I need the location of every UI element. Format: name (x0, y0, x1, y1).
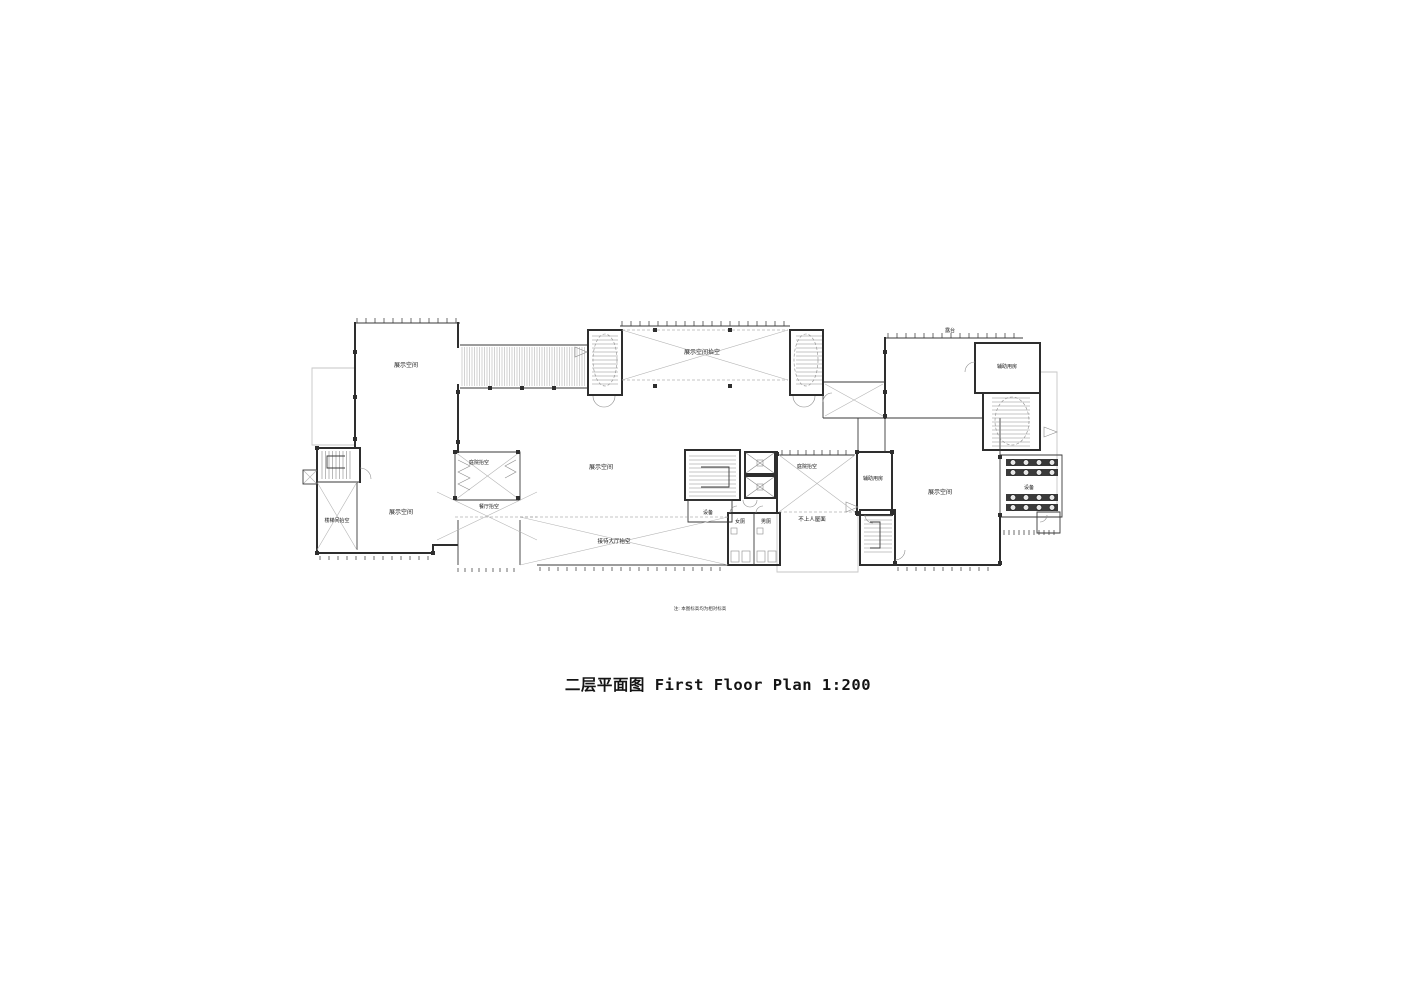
room-label-terrace: 露台 (945, 327, 955, 334)
room-label-stairwell-void: 楼梯间抬空 (324, 517, 349, 524)
room-label-aux-center: 辅助用房 (863, 475, 883, 482)
room-label-dining-void: 餐厅抬空 (479, 503, 499, 510)
room-label-exhibition-bottom-left: 展示空间 (389, 508, 413, 516)
room-label-inaccessible-roof: 不上人屋面 (798, 515, 826, 523)
walls (317, 323, 1062, 565)
drawing-sheet: 展示空间 展示空间抬空 露台 辅助用房 庭院抬空 展示空间 庭院抬空 辅助用房 … (0, 0, 1416, 1000)
floor-plan: 展示空间 展示空间抬空 露台 辅助用房 庭院抬空 展示空间 庭院抬空 辅助用房 … (0, 0, 1416, 1000)
room-label-exhibition-void-top: 展示空间抬空 (684, 348, 720, 356)
room-label-womens-toilet: 女厕 (735, 518, 745, 525)
stair-top-right (790, 330, 823, 407)
room-label-equipment-center: 设备 (703, 509, 713, 516)
room-label-courtyard-void-left: 庭院抬空 (469, 459, 489, 466)
room-label-aux-top-right: 辅助用房 (997, 363, 1017, 370)
toilet-fixtures (730, 506, 776, 562)
railing-ticks (320, 318, 1054, 572)
room-label-exhibition-center: 展示空间 (589, 463, 613, 471)
room-label-reception-void: 接待大厅抬空 (597, 537, 631, 545)
plan-note: 注: 本图标高均为相对标高 (674, 605, 727, 612)
ramp-bridge (460, 345, 588, 388)
columns (315, 328, 1002, 565)
plan-title: 二层平面图 First Floor Plan 1:200 (565, 676, 871, 694)
room-label-equipment-right: 设备 (1024, 484, 1034, 491)
room-label-mens-toilet: 男厕 (761, 519, 771, 525)
room-label-courtyard-void-right: 庭院抬空 (797, 463, 817, 470)
stair-right-block (992, 397, 1057, 446)
room-label-exhibition-right: 展示空间 (928, 488, 952, 496)
room-labels: 展示空间 展示空间抬空 露台 辅助用房 庭院抬空 展示空间 庭院抬空 辅助用房 … (324, 327, 1034, 545)
room-label-exhibition-top-left: 展示空间 (394, 361, 418, 369)
stair-bottom-left (322, 451, 371, 479)
